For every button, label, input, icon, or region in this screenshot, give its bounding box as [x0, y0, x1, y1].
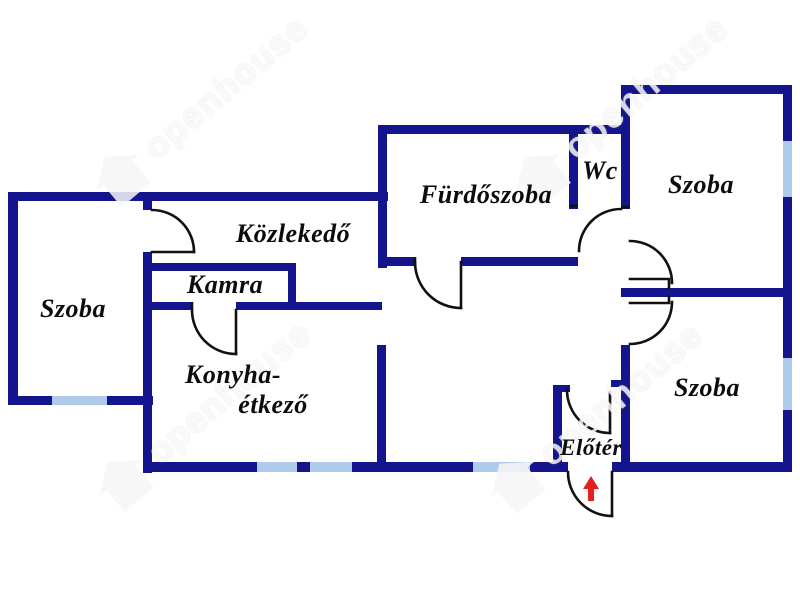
entrance-arrow-icon [583, 476, 599, 501]
entrance-arrow-layer [0, 0, 800, 600]
floor-plan: openhouse openhouse openhouse openhouse … [0, 0, 800, 600]
